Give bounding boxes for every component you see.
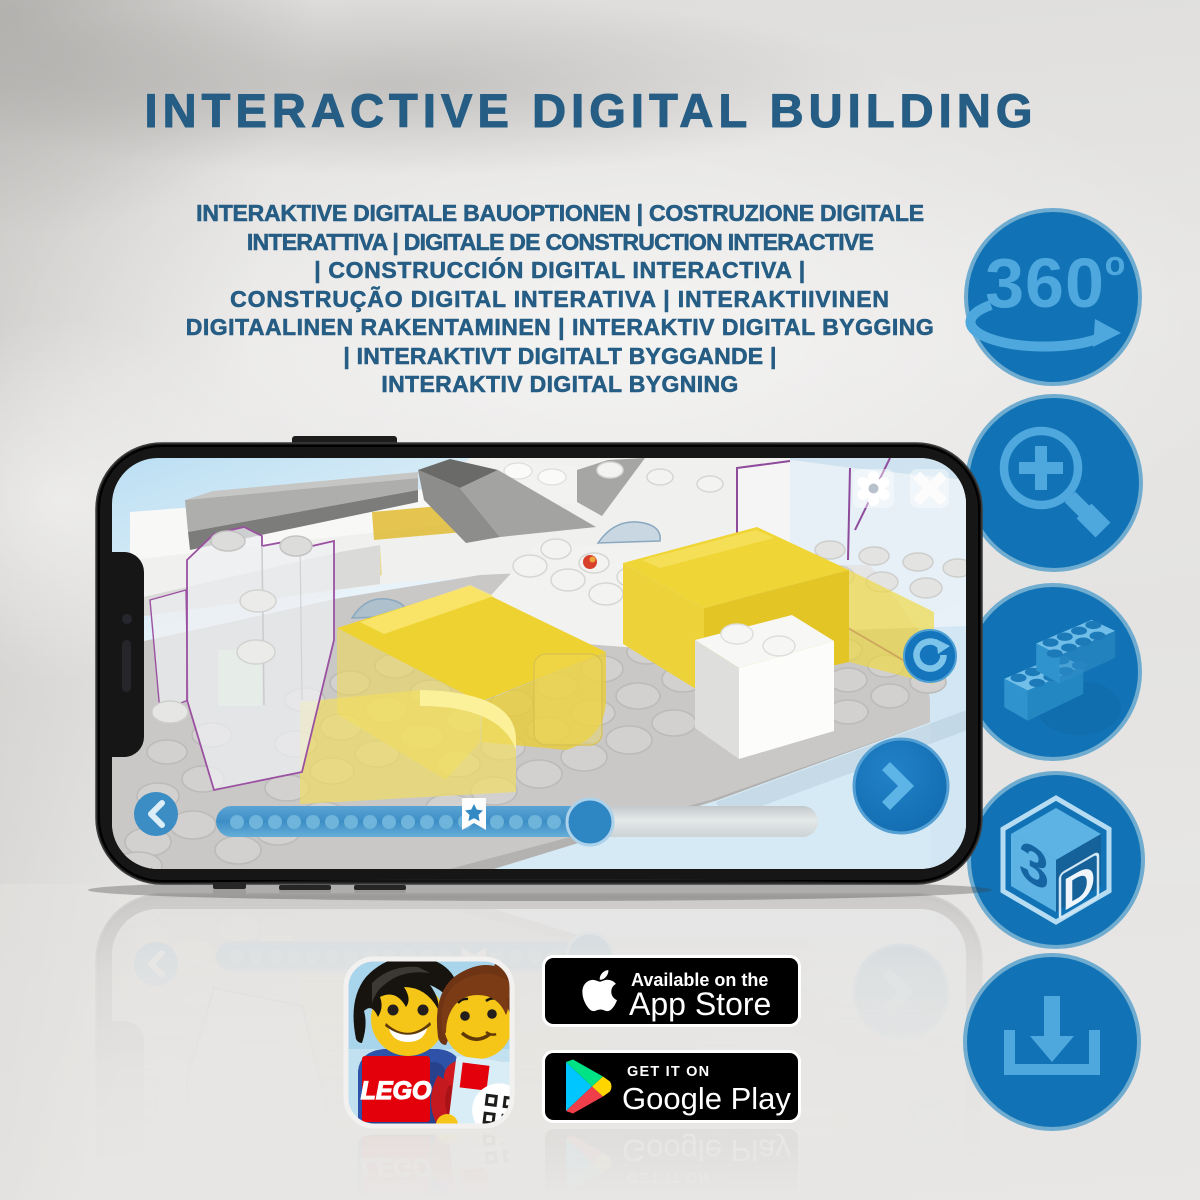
svg-text:LEGO: LEGO	[361, 1077, 432, 1105]
svg-text:o: o	[1105, 245, 1126, 283]
svg-text:GET IT ON: GET IT ON	[627, 1064, 710, 1080]
svg-text:Google Play: Google Play	[622, 1081, 791, 1116]
svg-text:360: 360	[985, 244, 1105, 322]
svg-text:App Store: App Store	[629, 986, 771, 1022]
